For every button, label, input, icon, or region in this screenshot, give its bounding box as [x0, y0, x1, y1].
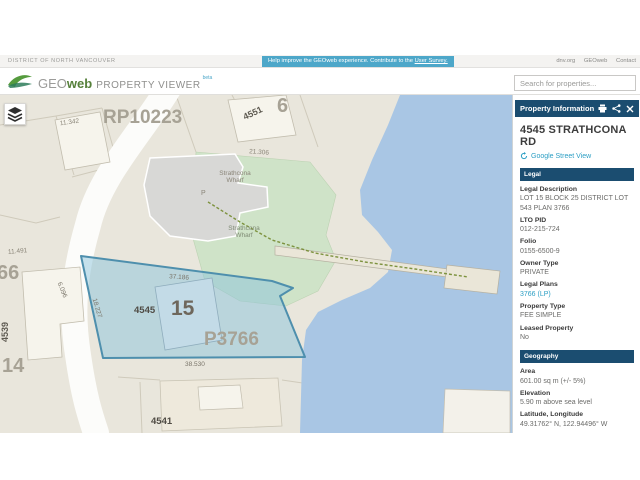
- field-label: Property Type: [520, 303, 634, 311]
- field-value-link[interactable]: 3766 (LP): [520, 290, 634, 299]
- property-info-panel: Property Information 4545 ST: [512, 95, 640, 433]
- label-lot-6: 6: [277, 96, 288, 117]
- property-address: 4545 STRATHCONA RD: [520, 124, 634, 148]
- layers-icon: [7, 106, 23, 122]
- section-header-geography: Geography: [520, 350, 634, 363]
- label-lot-15: 15: [171, 298, 194, 320]
- panel-header: Property Information: [515, 100, 639, 117]
- label-parking-p: P: [201, 190, 206, 197]
- print-icon[interactable]: [598, 104, 607, 113]
- survey-link[interactable]: User Survey.: [415, 58, 448, 64]
- logo-web: web: [67, 76, 92, 91]
- logo: GEOwebPROPERTY VIEWERbeta: [7, 72, 212, 96]
- survey-banner[interactable]: Help improve the GEOweb experience. Cont…: [262, 56, 454, 67]
- app-header: GEOwebPROPERTY VIEWERbeta: [0, 68, 640, 95]
- logo-suffix: PROPERTY VIEWER: [96, 80, 200, 91]
- field-label: Folio: [520, 238, 634, 246]
- label-addr-4545: 4545: [134, 306, 155, 316]
- field-label: Latitude, Longitude: [520, 411, 634, 419]
- logo-text: GEOwebPROPERTY VIEWERbeta: [38, 75, 212, 93]
- field-value: No: [520, 333, 634, 342]
- district-bar: DISTRICT OF NORTH VANCOUVER Help improve…: [0, 55, 640, 68]
- label-addr-4541: 4541: [151, 417, 172, 427]
- label-dim-37186: 37.186: [169, 274, 189, 282]
- app-window: DISTRICT OF NORTH VANCOUVER Help improve…: [0, 0, 640, 480]
- map-canvas[interactable]: RP1022311.3424551621.306StrathconaWharfP…: [0, 95, 512, 433]
- top-links: dnv.org GEOweb Contact: [549, 58, 636, 64]
- building: [198, 385, 243, 410]
- close-icon[interactable]: [626, 105, 634, 113]
- field-value: FEE SIMPLE: [520, 311, 634, 320]
- bird-logo-icon: [7, 72, 33, 96]
- search-input[interactable]: [514, 75, 636, 91]
- label-strathcona-wharf-2: StrathconaWharf: [222, 226, 266, 240]
- label-dim-38530: 38.530: [185, 362, 205, 369]
- field-label: Elevation: [520, 390, 634, 398]
- field-value: 012-215-724: [520, 225, 634, 234]
- sidebar-sections: LegalLegal DescriptionLOT 15 BLOCK 25 DI…: [520, 168, 634, 433]
- street-view-label: Google Street View: [531, 153, 591, 160]
- refresh-icon: [520, 152, 528, 160]
- district-title: DISTRICT OF NORTH VANCOUVER: [8, 58, 116, 64]
- field-value: 5.90 m above sea level: [520, 398, 634, 407]
- share-icon[interactable]: [612, 104, 621, 113]
- field-value: 601.00 sq m (+/- 5%): [520, 377, 634, 386]
- link-contact[interactable]: Contact: [616, 58, 636, 64]
- label-plan-p3766: P3766: [204, 330, 259, 350]
- field-label: LTO PID: [520, 217, 634, 225]
- logo-geo: GEO: [38, 76, 67, 91]
- label-strathcona-wharf-1: StrathconaWharf: [213, 171, 257, 185]
- label-lot-66: 66: [0, 263, 19, 284]
- panel-body: 4545 STRATHCONA RD Google Street View Le…: [515, 117, 639, 433]
- field-value: 49.31762° N, 122.94496° W: [520, 420, 634, 429]
- link-dnv-org[interactable]: dnv.org: [556, 58, 575, 64]
- building-dock: [443, 389, 510, 433]
- field-label: Legal Plans: [520, 281, 634, 289]
- field-label: Leased Property: [520, 325, 634, 333]
- survey-banner-text: Help improve the GEOweb experience. Cont…: [268, 58, 415, 64]
- field-label: Legal Description: [520, 186, 634, 194]
- logo-beta-badge: beta: [203, 75, 213, 81]
- map-base: [0, 95, 512, 433]
- field-value: 0155-6500-9: [520, 247, 634, 256]
- section-header-legal: Legal: [520, 168, 634, 181]
- link-geoweb[interactable]: GEOweb: [584, 58, 608, 64]
- label-addr-4539: 4539: [1, 322, 10, 342]
- field-label: Owner Type: [520, 260, 634, 268]
- field-value: LOT 15 BLOCK 25 DISTRICT LOT 543 PLAN 37…: [520, 194, 634, 212]
- label-dim-21306: 21.306: [249, 149, 269, 157]
- panel-title: Property Information: [520, 104, 598, 113]
- google-street-view-link[interactable]: Google Street View: [520, 152, 634, 160]
- field-label: Area: [520, 368, 634, 376]
- field-value: PRIVATE: [520, 268, 634, 277]
- label-plan-rp10223: RP10223: [103, 108, 182, 128]
- layers-button[interactable]: [4, 103, 26, 125]
- label-lot-14: 14: [2, 356, 24, 377]
